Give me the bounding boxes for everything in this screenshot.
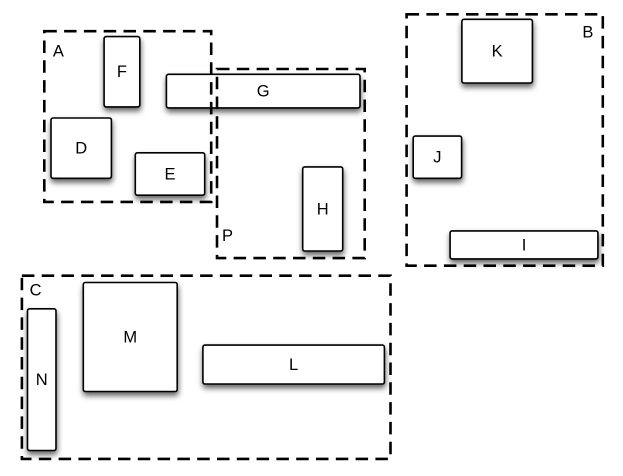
svg-text:F: F — [117, 63, 127, 81]
svg-text:I: I — [522, 236, 527, 254]
svg-text:A: A — [53, 42, 64, 60]
svg-text:H: H — [317, 200, 329, 218]
svg-text:N: N — [36, 371, 48, 389]
svg-text:C: C — [30, 282, 42, 300]
svg-text:D: D — [75, 140, 87, 158]
svg-text:B: B — [582, 24, 593, 42]
svg-text:G: G — [257, 83, 270, 101]
svg-text:P: P — [222, 227, 233, 245]
svg-text:L: L — [289, 356, 298, 374]
svg-text:K: K — [492, 43, 503, 61]
svg-text:J: J — [433, 149, 441, 167]
svg-text:M: M — [123, 329, 137, 347]
svg-text:E: E — [164, 166, 175, 184]
